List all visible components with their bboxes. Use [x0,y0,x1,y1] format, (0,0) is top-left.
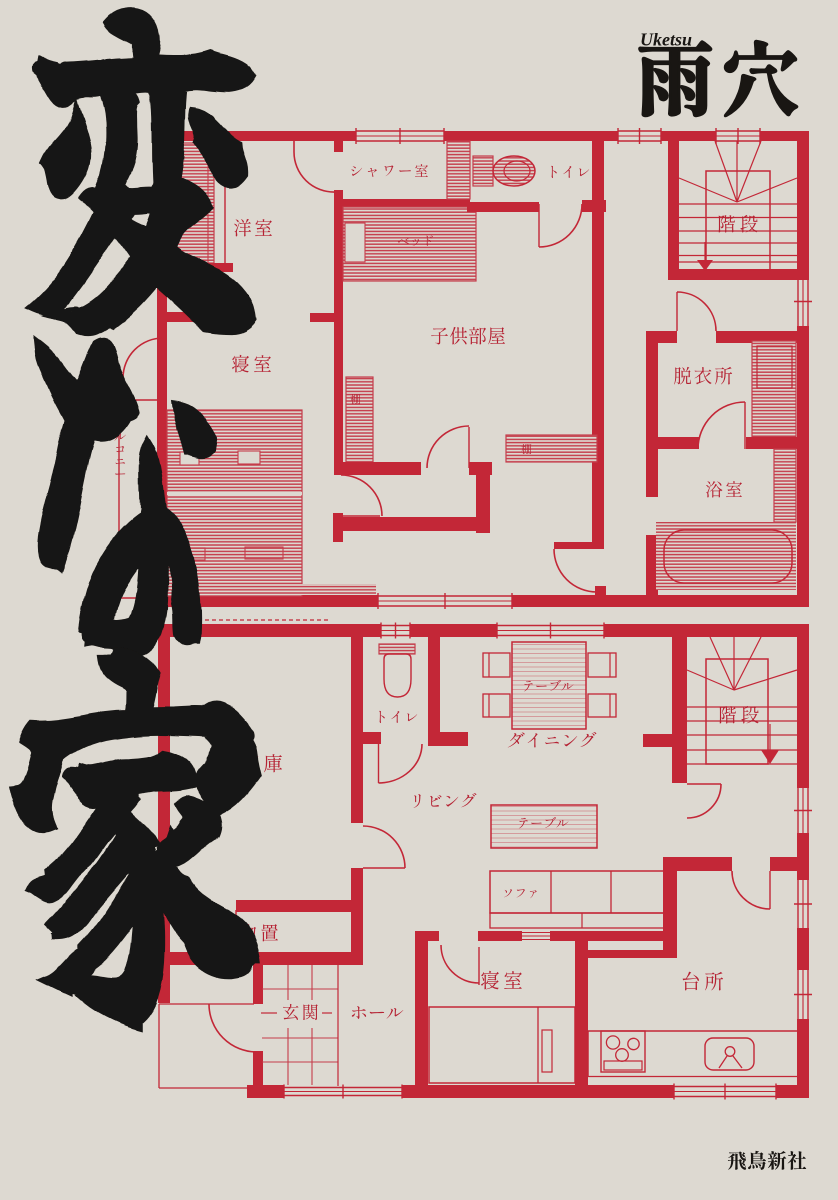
svg-text:Uketsu: Uketsu [640,30,692,50]
